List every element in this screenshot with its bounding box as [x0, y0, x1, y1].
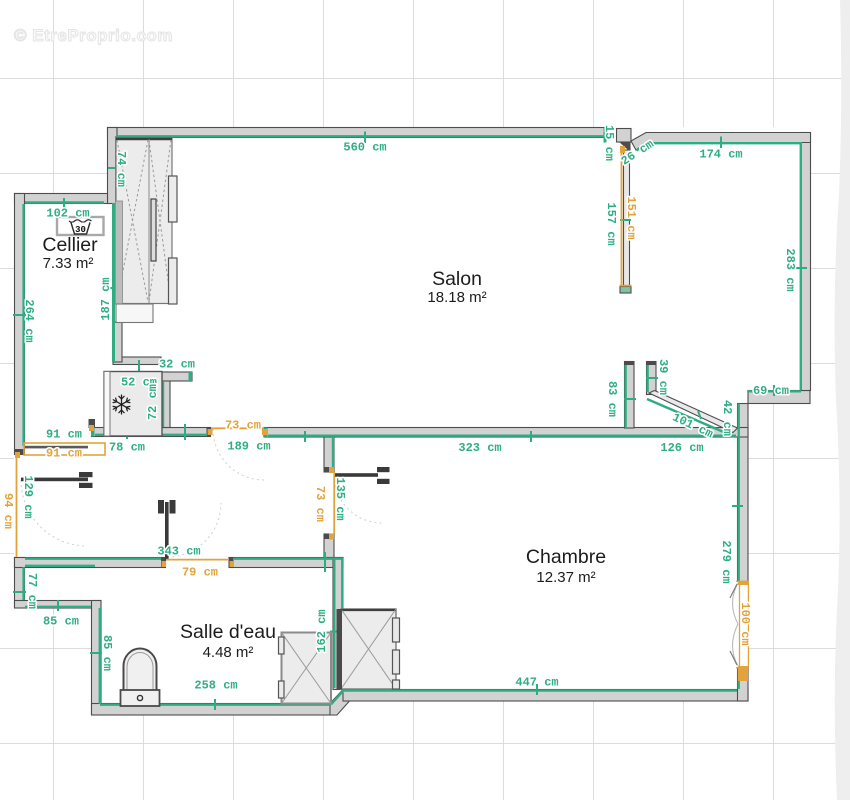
svg-text:77 cm: 77 cm [25, 573, 39, 609]
svg-text:151 cm: 151 cm [624, 196, 638, 239]
svg-text:85 cm: 85 cm [43, 615, 79, 629]
svg-text:15 cm: 15 cm [602, 125, 616, 161]
svg-text:7.33 m²: 7.33 m² [43, 255, 94, 272]
svg-text:102 cm: 102 cm [46, 207, 89, 221]
svg-text:Chambre: Chambre [526, 546, 606, 568]
svg-text:279 cm: 279 cm [719, 540, 733, 583]
svg-text:Salle d'eau: Salle d'eau [180, 621, 276, 643]
svg-text:135 cm: 135 cm [333, 477, 347, 520]
svg-text:174 cm: 174 cm [699, 148, 742, 162]
svg-text:91 cm: 91 cm [46, 447, 82, 461]
svg-text:72 cm: 72 cm [146, 384, 160, 420]
svg-text:264 cm: 264 cm [22, 299, 36, 342]
svg-text:323 cm: 323 cm [458, 441, 501, 455]
svg-text:79 cm: 79 cm [182, 566, 218, 580]
svg-text:69 cm: 69 cm [753, 384, 789, 398]
svg-text:4.48 m²: 4.48 m² [203, 644, 254, 661]
svg-text:78 cm: 78 cm [109, 441, 145, 455]
svg-text:283 cm: 283 cm [783, 248, 797, 291]
svg-text:162 cm: 162 cm [315, 609, 329, 652]
svg-text:100 cm: 100 cm [738, 602, 752, 645]
svg-text:129 cm: 129 cm [21, 475, 35, 518]
svg-text:258 cm: 258 cm [194, 679, 237, 693]
svg-text:91 cm: 91 cm [46, 428, 82, 442]
svg-text:39 cm: 39 cm [656, 359, 670, 395]
svg-text:12.37 m²: 12.37 m² [536, 569, 595, 586]
svg-text:157 cm: 157 cm [604, 202, 618, 245]
svg-text:73 cm: 73 cm [313, 486, 327, 522]
svg-text:126 cm: 126 cm [660, 441, 703, 455]
svg-text:42 cm: 42 cm [720, 400, 734, 436]
svg-text:447 cm: 447 cm [515, 676, 558, 690]
svg-text:74 cm: 74 cm [114, 151, 128, 187]
svg-text:83 cm: 83 cm [605, 381, 619, 417]
svg-text:94 cm: 94 cm [1, 493, 15, 529]
svg-text:Salon: Salon [432, 268, 482, 290]
svg-text:187 cm: 187 cm [99, 277, 113, 320]
svg-text:© EtreProprio.com: © EtreProprio.com [14, 26, 173, 45]
svg-text:18.18 m²: 18.18 m² [427, 289, 486, 306]
svg-text:343 cm: 343 cm [157, 545, 200, 559]
svg-text:560 cm: 560 cm [343, 141, 386, 155]
svg-text:73 cm: 73 cm [225, 419, 261, 433]
svg-text:189 cm: 189 cm [227, 440, 270, 454]
svg-text:Cellier: Cellier [42, 234, 98, 256]
svg-text:85 cm: 85 cm [100, 635, 114, 671]
svg-text:32 cm: 32 cm [159, 358, 195, 372]
